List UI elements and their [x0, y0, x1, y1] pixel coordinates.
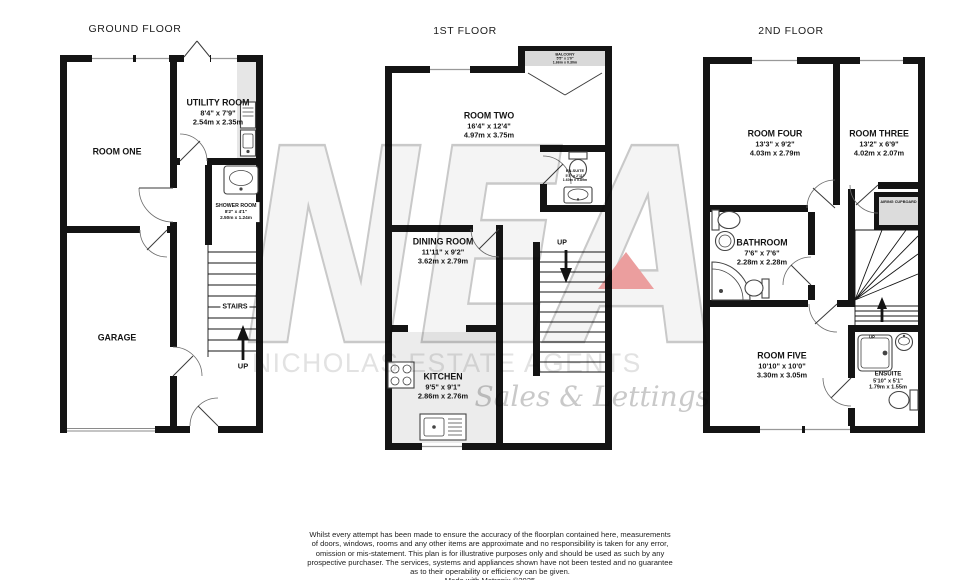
- second-floor-plan: ROOM FOUR 13'3" x 9'2" 4.03m x 2.79m ROO…: [698, 48, 933, 448]
- shower-basin-icon: [224, 166, 258, 194]
- bathroom-toilet-icon: [712, 210, 740, 230]
- ground-fixtures: [224, 62, 258, 194]
- second-floor-title: 2ND FLOOR: [758, 25, 824, 37]
- wc-basin-icon: [564, 187, 592, 203]
- first-stairs: [540, 250, 605, 372]
- shower-room-label: SHOWER ROOM 8'2" x 4'1" 2.50m x 1.24m: [213, 202, 260, 222]
- room-two-label: ROOM TWO 16'4" x 12'4" 4.97m x 3.75m: [464, 111, 514, 140]
- ground-floor-title: GROUND FLOOR: [89, 23, 182, 35]
- first-floor-plan: ROOM TWO 16'4" x 12'4" 4.97m x 3.75m BAL…: [378, 46, 623, 461]
- balcony-label: BALCONY 5'5" x 1'0" 1.66m x 0.30m: [553, 52, 577, 65]
- room-four-label: ROOM FOUR 13'3" x 9'2" 4.03m x 2.79m: [748, 129, 803, 158]
- disclaimer-text: Whilst every attempt has been made to en…: [0, 530, 980, 580]
- bathroom-basin-icon: [716, 232, 735, 251]
- ensuite-basin-icon: [896, 334, 913, 351]
- disclaimer-line: Whilst every attempt has been made to en…: [0, 530, 980, 539]
- first-floor-title: 1ST FLOOR: [433, 25, 497, 37]
- first-ensuite-label: EN-SUITE 5'3" x 2'11" 1.60m x 0.89m: [563, 169, 587, 183]
- dining-room-label: DINING ROOM 11'11" x 9'2" 3.62m x 2.79m: [413, 237, 474, 266]
- room-three-label: ROOM THREE 13'2" x 6'9" 4.02m x 2.07m: [849, 129, 909, 158]
- disclaimer-credit: Made with Metropix ©2025: [0, 576, 980, 580]
- corner-shower-icon: [712, 262, 750, 300]
- second-stairs: [855, 230, 918, 325]
- ground-up-label: UP: [238, 362, 248, 371]
- ground-floor-plan: ROOM ONE UTILITY ROOM 8'4" x 7'9" 2.54m …: [55, 48, 270, 443]
- room-one-label: ROOM ONE: [93, 147, 142, 158]
- bathroom-label: BATHROOM 7'6" x 7'6" 2.28m x 2.28m: [736, 238, 787, 267]
- kitchen-label: KITCHEN 9'5" x 9'1" 2.86m x 2.76m: [418, 372, 468, 401]
- disclaimer-line: of doors, windows, rooms and any other i…: [0, 539, 980, 548]
- ensuite-shower-icon: [858, 335, 892, 371]
- garage-label: GARAGE: [98, 333, 137, 344]
- airing-cupboard-label: AIRING CUPBOARD: [879, 197, 918, 229]
- stairs-label: STAIRS: [220, 304, 249, 311]
- disclaimer-line: omission or mis-statement. This plan is …: [0, 549, 980, 558]
- hob-icon: [388, 362, 414, 388]
- disclaimer-line: prospective purchaser. The services, sys…: [0, 558, 980, 567]
- ensuite-label: ENSUITE 5'10" x 5'1" 1.79m x 1.55m: [869, 370, 907, 391]
- floorplan-canvas: GROUND FLOOR 1ST FLOOR 2ND FLOOR: [0, 0, 980, 580]
- first-up-label: UP: [557, 240, 567, 247]
- utility-sink-icon: [241, 130, 256, 156]
- disclaimer-line: as to their operability or efficiency ca…: [0, 567, 980, 576]
- utility-room-label: UTILITY ROOM 8'4" x 7'9" 2.54m x 2.35m: [187, 98, 250, 127]
- ensuite-toilet-icon: [889, 390, 918, 410]
- kitchen-sink-icon: [420, 414, 466, 440]
- room-five-label: ROOM FIVE 10'10" x 10'0" 3.30m x 3.05m: [757, 351, 807, 380]
- ground-stairs: [208, 245, 256, 360]
- second-up-label: UP: [869, 335, 875, 340]
- first-doors: [471, 66, 605, 257]
